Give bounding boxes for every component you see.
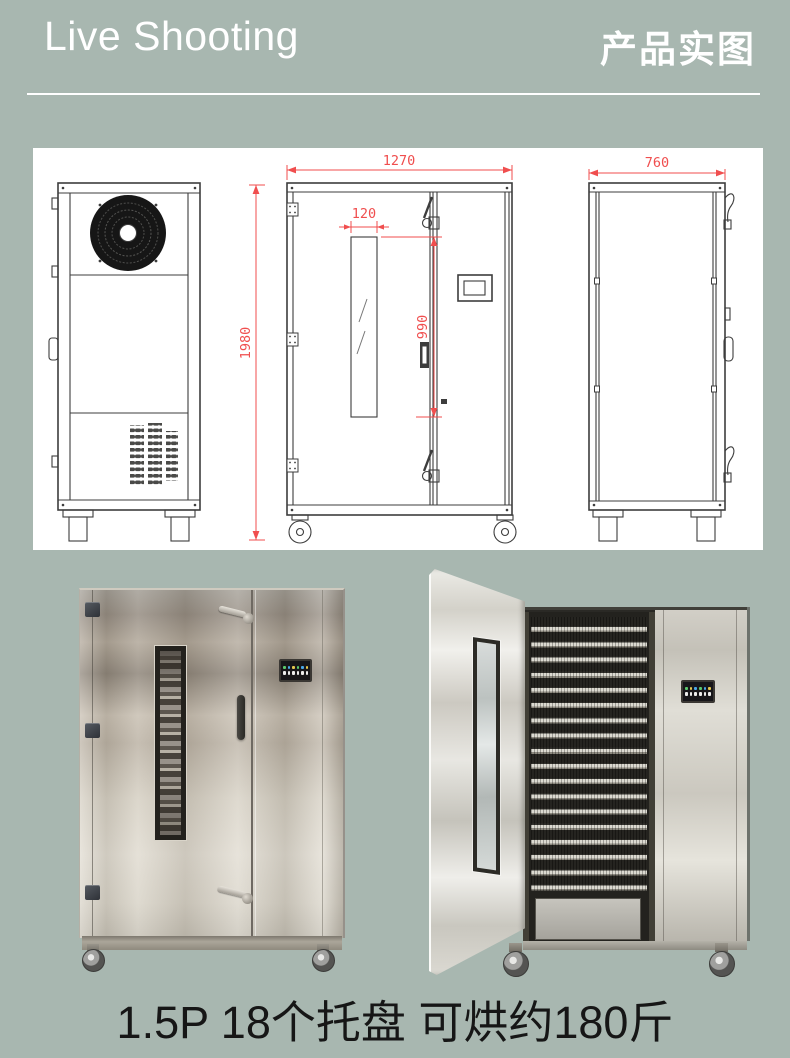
switch-dot [283,671,286,675]
switch-dot [708,692,711,696]
cabinet-leg [63,510,195,541]
indicator-dot [694,687,697,690]
control-panel [279,659,312,682]
control-panel-icon [458,275,492,301]
svg-text:990: 990 [415,315,431,339]
front-view: 1270 [287,153,516,543]
caster-wheel [312,949,335,972]
switch-row [685,692,711,696]
indicator-row [685,687,711,690]
switch-dot [699,692,702,696]
product-caption: 1.5P 18个托盘 可烘约180斤 [0,986,790,1051]
cabinet-base [82,936,342,950]
cabinet-interior [523,612,655,944]
cabinet-base [523,941,747,950]
switch-dot [690,692,693,696]
cabinet-body [523,607,747,941]
indicator-dot [283,666,286,669]
switch-dot [288,671,291,675]
latch-pivot [243,613,254,624]
control-panel [681,680,715,703]
indicator-dot [704,687,707,690]
side-view-right: 760 [589,155,734,541]
dimension-window-width: 120 [339,206,389,233]
caster-wheel [709,951,735,977]
panel-seam [736,610,737,944]
indicator-dot [690,687,693,690]
hinge-icon [85,885,100,900]
hinge-icon [85,723,100,738]
door-window [473,637,500,875]
indicator-dot [297,666,300,669]
dimension-height: 1980 [238,185,265,540]
side-panel [655,610,747,944]
panel-seam [663,610,664,944]
panel-seam [322,590,323,938]
dimension-front-width: 1270 [383,153,416,169]
indicator-dot [306,666,309,669]
door-handle-icon [420,342,429,368]
louver-vent-icon [130,423,178,485]
switch-dot [297,671,300,675]
switch-dot [306,671,309,675]
switch-row [283,671,308,675]
indicator-dot [292,666,295,669]
indicator-dot [708,687,711,690]
switch-dot [685,692,688,696]
latch-icon [49,198,58,467]
window-shade [160,651,181,835]
latch-icon [218,606,258,630]
door-window [155,646,186,840]
latch-icon [217,886,257,910]
switch-dot [694,692,697,696]
open-door [429,569,525,975]
product-photo-open [425,563,755,978]
page-title-zh: 产品实图 [600,19,756,73]
door-window [351,237,377,417]
indicator-dot [685,687,688,690]
technical-drawing-svg: 1980 1270 [33,148,763,550]
product-photo-closed [79,588,345,972]
switch-dot [704,692,707,696]
dimension-side-depth: 760 [645,155,669,171]
header-divider [27,93,760,95]
fan-icon [90,195,166,271]
caster-icon [289,515,516,543]
hinge-icon [85,602,100,617]
cabinet-leg [593,510,721,541]
door-handle [237,695,245,740]
indicator-dot [301,666,304,669]
cabinet-body [79,588,345,938]
switch-dot [292,671,295,675]
svg-text:1980: 1980 [238,327,254,360]
side-view-left [49,183,200,541]
indicator-row [283,666,308,669]
indicator-dot [288,666,291,669]
indicator-dot [699,687,702,690]
caster-wheel [503,951,529,977]
tray-stack [531,617,647,891]
caster-wheel [82,949,105,972]
technical-drawing-panel: 1980 1270 [33,148,763,550]
page-title: Live Shooting [44,13,299,60]
latch-pivot [242,893,253,904]
lower-panel [535,898,641,940]
page: { "colors":{"background":"#a8b7b0","pane… [0,0,790,1058]
switch-dot [301,671,304,675]
svg-text:120: 120 [352,206,376,222]
